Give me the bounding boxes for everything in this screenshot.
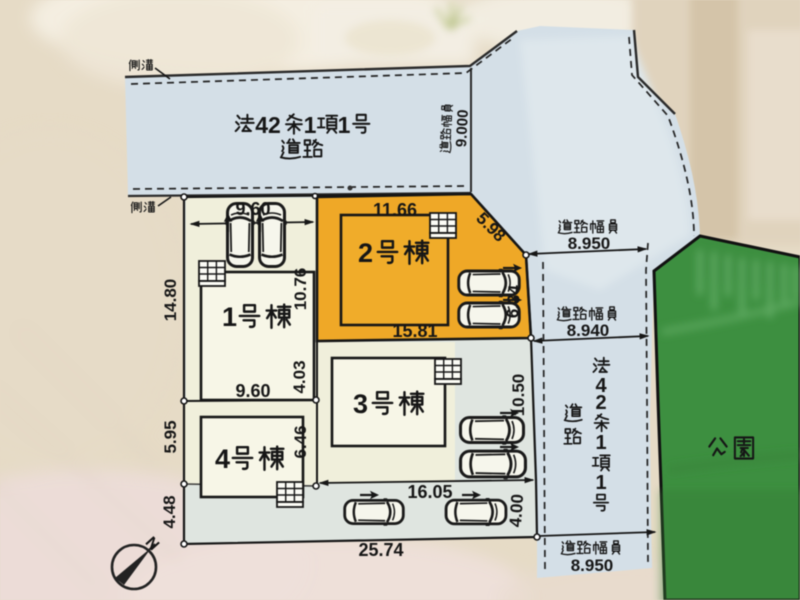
svg-text:15.81: 15.81 xyxy=(392,321,437,341)
svg-text:6.46: 6.46 xyxy=(291,425,310,458)
svg-text:42: 42 xyxy=(255,112,281,138)
svg-text:4.03: 4.03 xyxy=(290,360,309,393)
svg-text:2: 2 xyxy=(595,392,606,414)
svg-text:8.950: 8.950 xyxy=(571,556,614,575)
svg-text:14.80: 14.80 xyxy=(161,279,180,322)
svg-text:11.66: 11.66 xyxy=(373,200,417,220)
svg-text:10.76: 10.76 xyxy=(291,268,310,311)
svg-text:25.74: 25.74 xyxy=(358,540,403,560)
svg-text:1: 1 xyxy=(222,302,237,332)
svg-text:2: 2 xyxy=(358,238,373,268)
svg-text:9.000: 9.000 xyxy=(453,109,472,147)
svg-text:1: 1 xyxy=(595,432,606,454)
svg-text:1: 1 xyxy=(304,112,317,138)
svg-text:9.60: 9.60 xyxy=(235,381,270,401)
svg-text:1: 1 xyxy=(338,112,351,138)
svg-text:5.95: 5.95 xyxy=(161,420,180,453)
svg-text:9.60: 9.60 xyxy=(235,199,270,219)
svg-text:1: 1 xyxy=(595,472,606,494)
svg-text:4: 4 xyxy=(215,444,230,474)
svg-text:6.34: 6.34 xyxy=(503,284,524,319)
svg-text:4.00: 4.00 xyxy=(506,493,527,527)
svg-text:4.48: 4.48 xyxy=(160,495,179,528)
svg-text:10.50: 10.50 xyxy=(509,374,528,417)
svg-text:3: 3 xyxy=(353,389,368,419)
svg-text:16.05: 16.05 xyxy=(407,482,452,502)
